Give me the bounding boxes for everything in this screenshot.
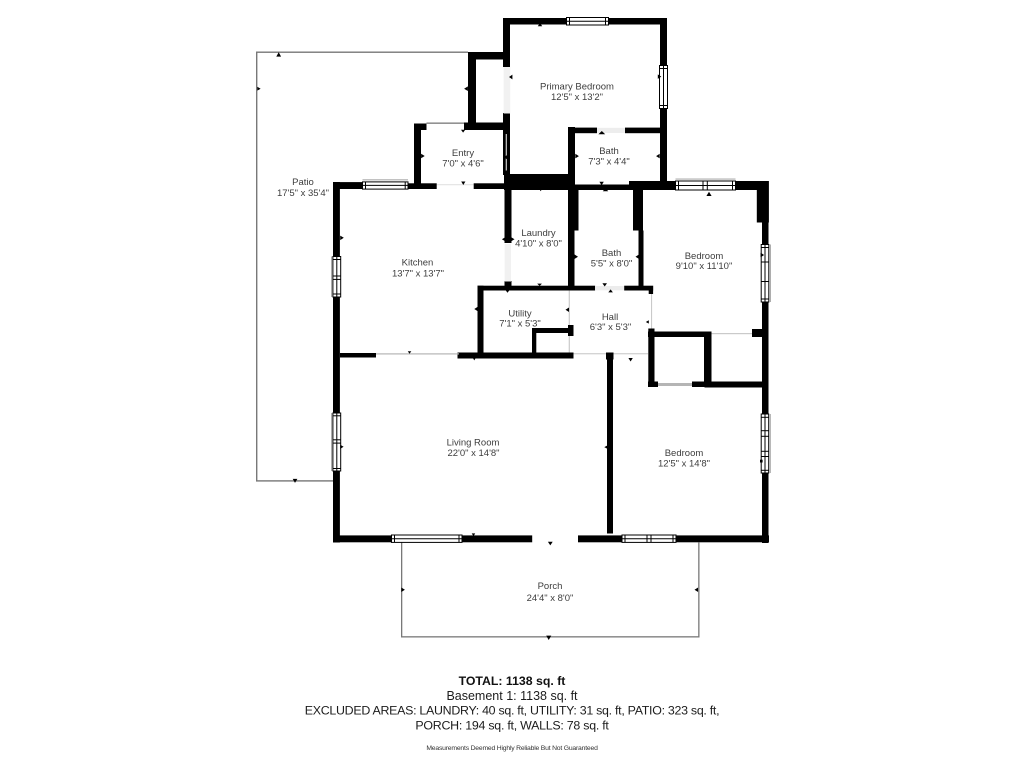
svg-text:12'5" x 13'2": 12'5" x 13'2": [551, 92, 603, 103]
svg-text:7'0" x 4'6": 7'0" x 4'6": [442, 159, 484, 170]
svg-text:17'5" x 35'4": 17'5" x 35'4": [277, 188, 329, 199]
svg-text:Laundry: Laundry: [521, 228, 556, 239]
svg-text:Primary Bedroom: Primary Bedroom: [540, 82, 614, 93]
svg-text:Patio: Patio: [292, 177, 314, 188]
svg-text:Porch: Porch: [538, 581, 563, 592]
svg-text:Basement 1: 1138 sq. ft: Basement 1: 1138 sq. ft: [446, 689, 578, 703]
svg-text:22'0" x 14'8": 22'0" x 14'8": [447, 448, 499, 459]
svg-text:Bath: Bath: [599, 146, 619, 157]
svg-text:EXCLUDED AREAS: LAUNDRY: 40 sq: EXCLUDED AREAS: LAUNDRY: 40 sq. ft, UTIL…: [305, 704, 720, 718]
svg-text:6'3" x 5'3": 6'3" x 5'3": [590, 322, 632, 333]
svg-text:Bath: Bath: [602, 248, 622, 259]
svg-text:Bedroom: Bedroom: [665, 448, 704, 459]
svg-text:Measurements Deemed Highly Rel: Measurements Deemed Highly Reliable But …: [426, 745, 598, 752]
svg-text:9'10" x 11'10": 9'10" x 11'10": [676, 261, 733, 272]
svg-text:24'4" x 8'0": 24'4" x 8'0": [527, 593, 574, 604]
svg-text:5'5" x 8'0": 5'5" x 8'0": [591, 259, 633, 270]
svg-text:Entry: Entry: [452, 148, 474, 159]
svg-text:13'7" x 13'7": 13'7" x 13'7": [392, 268, 444, 279]
svg-text:Kitchen: Kitchen: [402, 258, 434, 269]
svg-text:4'10" x 8'0": 4'10" x 8'0": [515, 239, 562, 250]
svg-text:7'3" x 4'4": 7'3" x 4'4": [588, 157, 630, 168]
svg-text:7'1" x 5'3": 7'1" x 5'3": [499, 318, 541, 329]
svg-text:TOTAL: 1138 sq. ft: TOTAL: 1138 sq. ft: [459, 674, 566, 688]
svg-text:PORCH: 194 sq. ft, WALLS: 78 s: PORCH: 194 sq. ft, WALLS: 78 sq. ft: [415, 719, 609, 733]
svg-text:12'5" x 14'8": 12'5" x 14'8": [658, 459, 710, 470]
